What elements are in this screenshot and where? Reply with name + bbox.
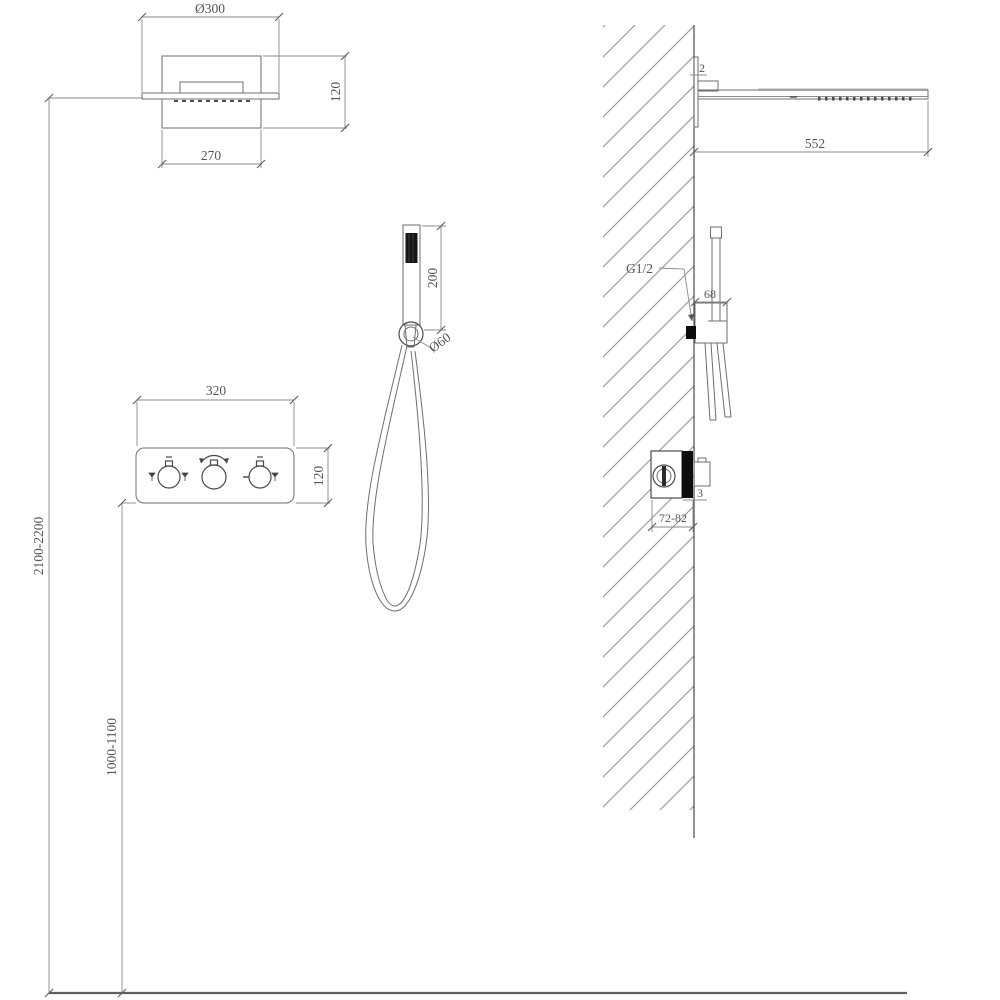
dim-bracket-width: 68	[704, 287, 716, 301]
dim-valve-install-height: 1000-1100	[104, 718, 119, 776]
install-height-dimensions: 2100-2200 1000-1100	[31, 94, 142, 997]
head-slab-side	[698, 90, 928, 99]
wall-hatching	[603, 25, 694, 810]
tap-icon	[182, 473, 188, 481]
rain-head-front-view: Ø300 120 270	[138, 1, 349, 168]
hand-shower-hose-loop	[366, 345, 429, 611]
head-nozzle-row	[174, 100, 250, 102]
hose-side-view	[705, 343, 731, 420]
dim-panel-width: 320	[206, 383, 227, 398]
dim-hand-shower-length: 200	[425, 268, 440, 289]
dim-trim-thickness: 3	[697, 486, 703, 500]
hand-shower-spray-face	[406, 233, 418, 263]
dim-plate-thickness: 2	[699, 61, 705, 75]
wand-side	[712, 238, 720, 321]
tap-icon	[149, 473, 155, 481]
panel-knob-onoff	[199, 455, 229, 489]
dim-holder-diameter: Ø60	[426, 329, 454, 355]
dim-panel-height: 120	[311, 466, 326, 487]
dim-head-width: 270	[201, 148, 222, 163]
wall-section	[603, 25, 694, 838]
dim-head-install-height: 2100-2200	[31, 517, 46, 576]
shower-installation-diagram: Ø300 120 270 2100-2200	[0, 0, 1000, 1000]
head-face-plate	[142, 93, 279, 99]
wand-cap-side	[711, 227, 722, 238]
panel-knob-diverter	[149, 457, 188, 488]
dim-head-height: 120	[328, 82, 343, 103]
valve-trim-plate	[682, 451, 693, 498]
valve-cartridge-slot	[662, 466, 666, 486]
tap-icon	[272, 473, 278, 481]
valve-knob-side	[694, 462, 710, 486]
valve-panel-front-view: 320 120	[133, 383, 332, 507]
dim-head-projection: 552	[805, 136, 825, 151]
hand-shower-holder-ring	[399, 322, 423, 346]
valve-body	[651, 451, 682, 498]
hand-shower-front-view: 200 Ø60	[366, 222, 454, 611]
rain-head-side-view: 2 552	[690, 57, 932, 157]
hand-shower-bracket	[695, 303, 727, 343]
dim-head-diameter: Ø300	[195, 1, 225, 16]
water-outlet-connector	[686, 326, 696, 339]
head-housing	[162, 56, 261, 128]
panel-knob-temperature	[243, 457, 278, 488]
rotate-arc-icon	[201, 455, 227, 463]
installation-drawing-canvas: Ø300 120 270 2100-2200	[0, 0, 1000, 1000]
label-connector-thread: G1/2	[626, 261, 653, 276]
dim-rough-in-depth: 72-82	[659, 511, 687, 525]
